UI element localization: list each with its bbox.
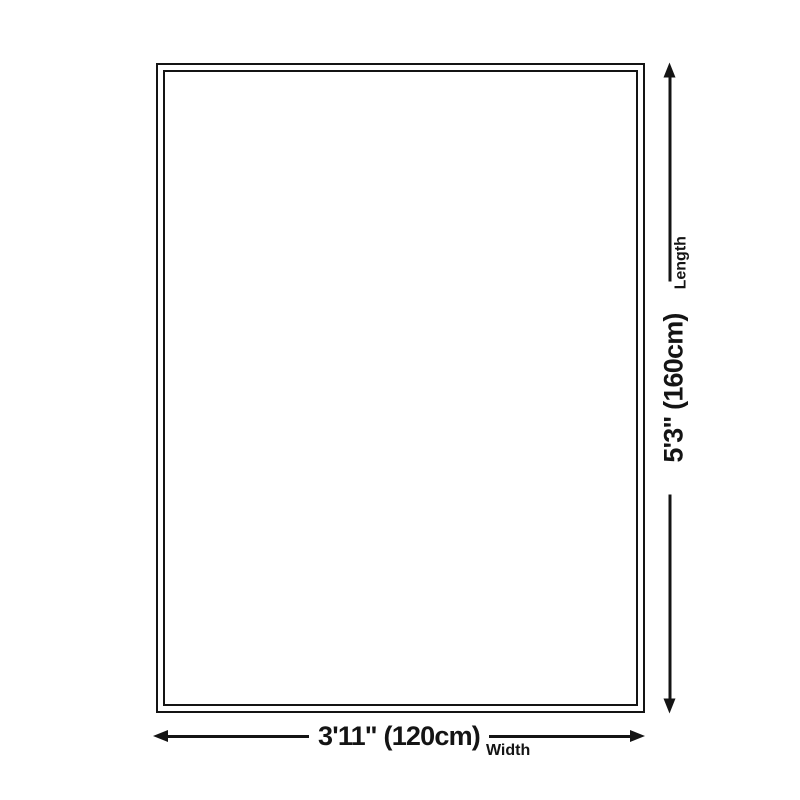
width-dimension-line-right: Width: [489, 735, 630, 738]
length-dimension-arrow: 5'3" (160cm) Length: [650, 63, 690, 714]
rug-size-diagram: 3'11" (120cm) Width 5'3" (160cm) Length: [0, 0, 800, 800]
width-value: 3'11" (120cm): [318, 723, 480, 750]
length-value: 5'3" (160cm): [660, 313, 687, 462]
arrowhead-left-icon: [153, 730, 168, 742]
length-dimension-line-bottom: [668, 495, 671, 699]
rug-inner-border: [163, 70, 638, 706]
arrowhead-up-icon: [664, 63, 676, 78]
width-dimension-line-left: [168, 735, 309, 738]
arrowhead-down-icon: [664, 699, 676, 714]
length-label: Length: [673, 236, 689, 289]
width-dimension-arrow: 3'11" (120cm) Width: [153, 716, 645, 756]
width-label: Width: [486, 743, 530, 759]
rug-outline: [156, 63, 645, 713]
arrowhead-right-icon: [630, 730, 645, 742]
length-dimension-line-top: Length: [668, 78, 671, 282]
